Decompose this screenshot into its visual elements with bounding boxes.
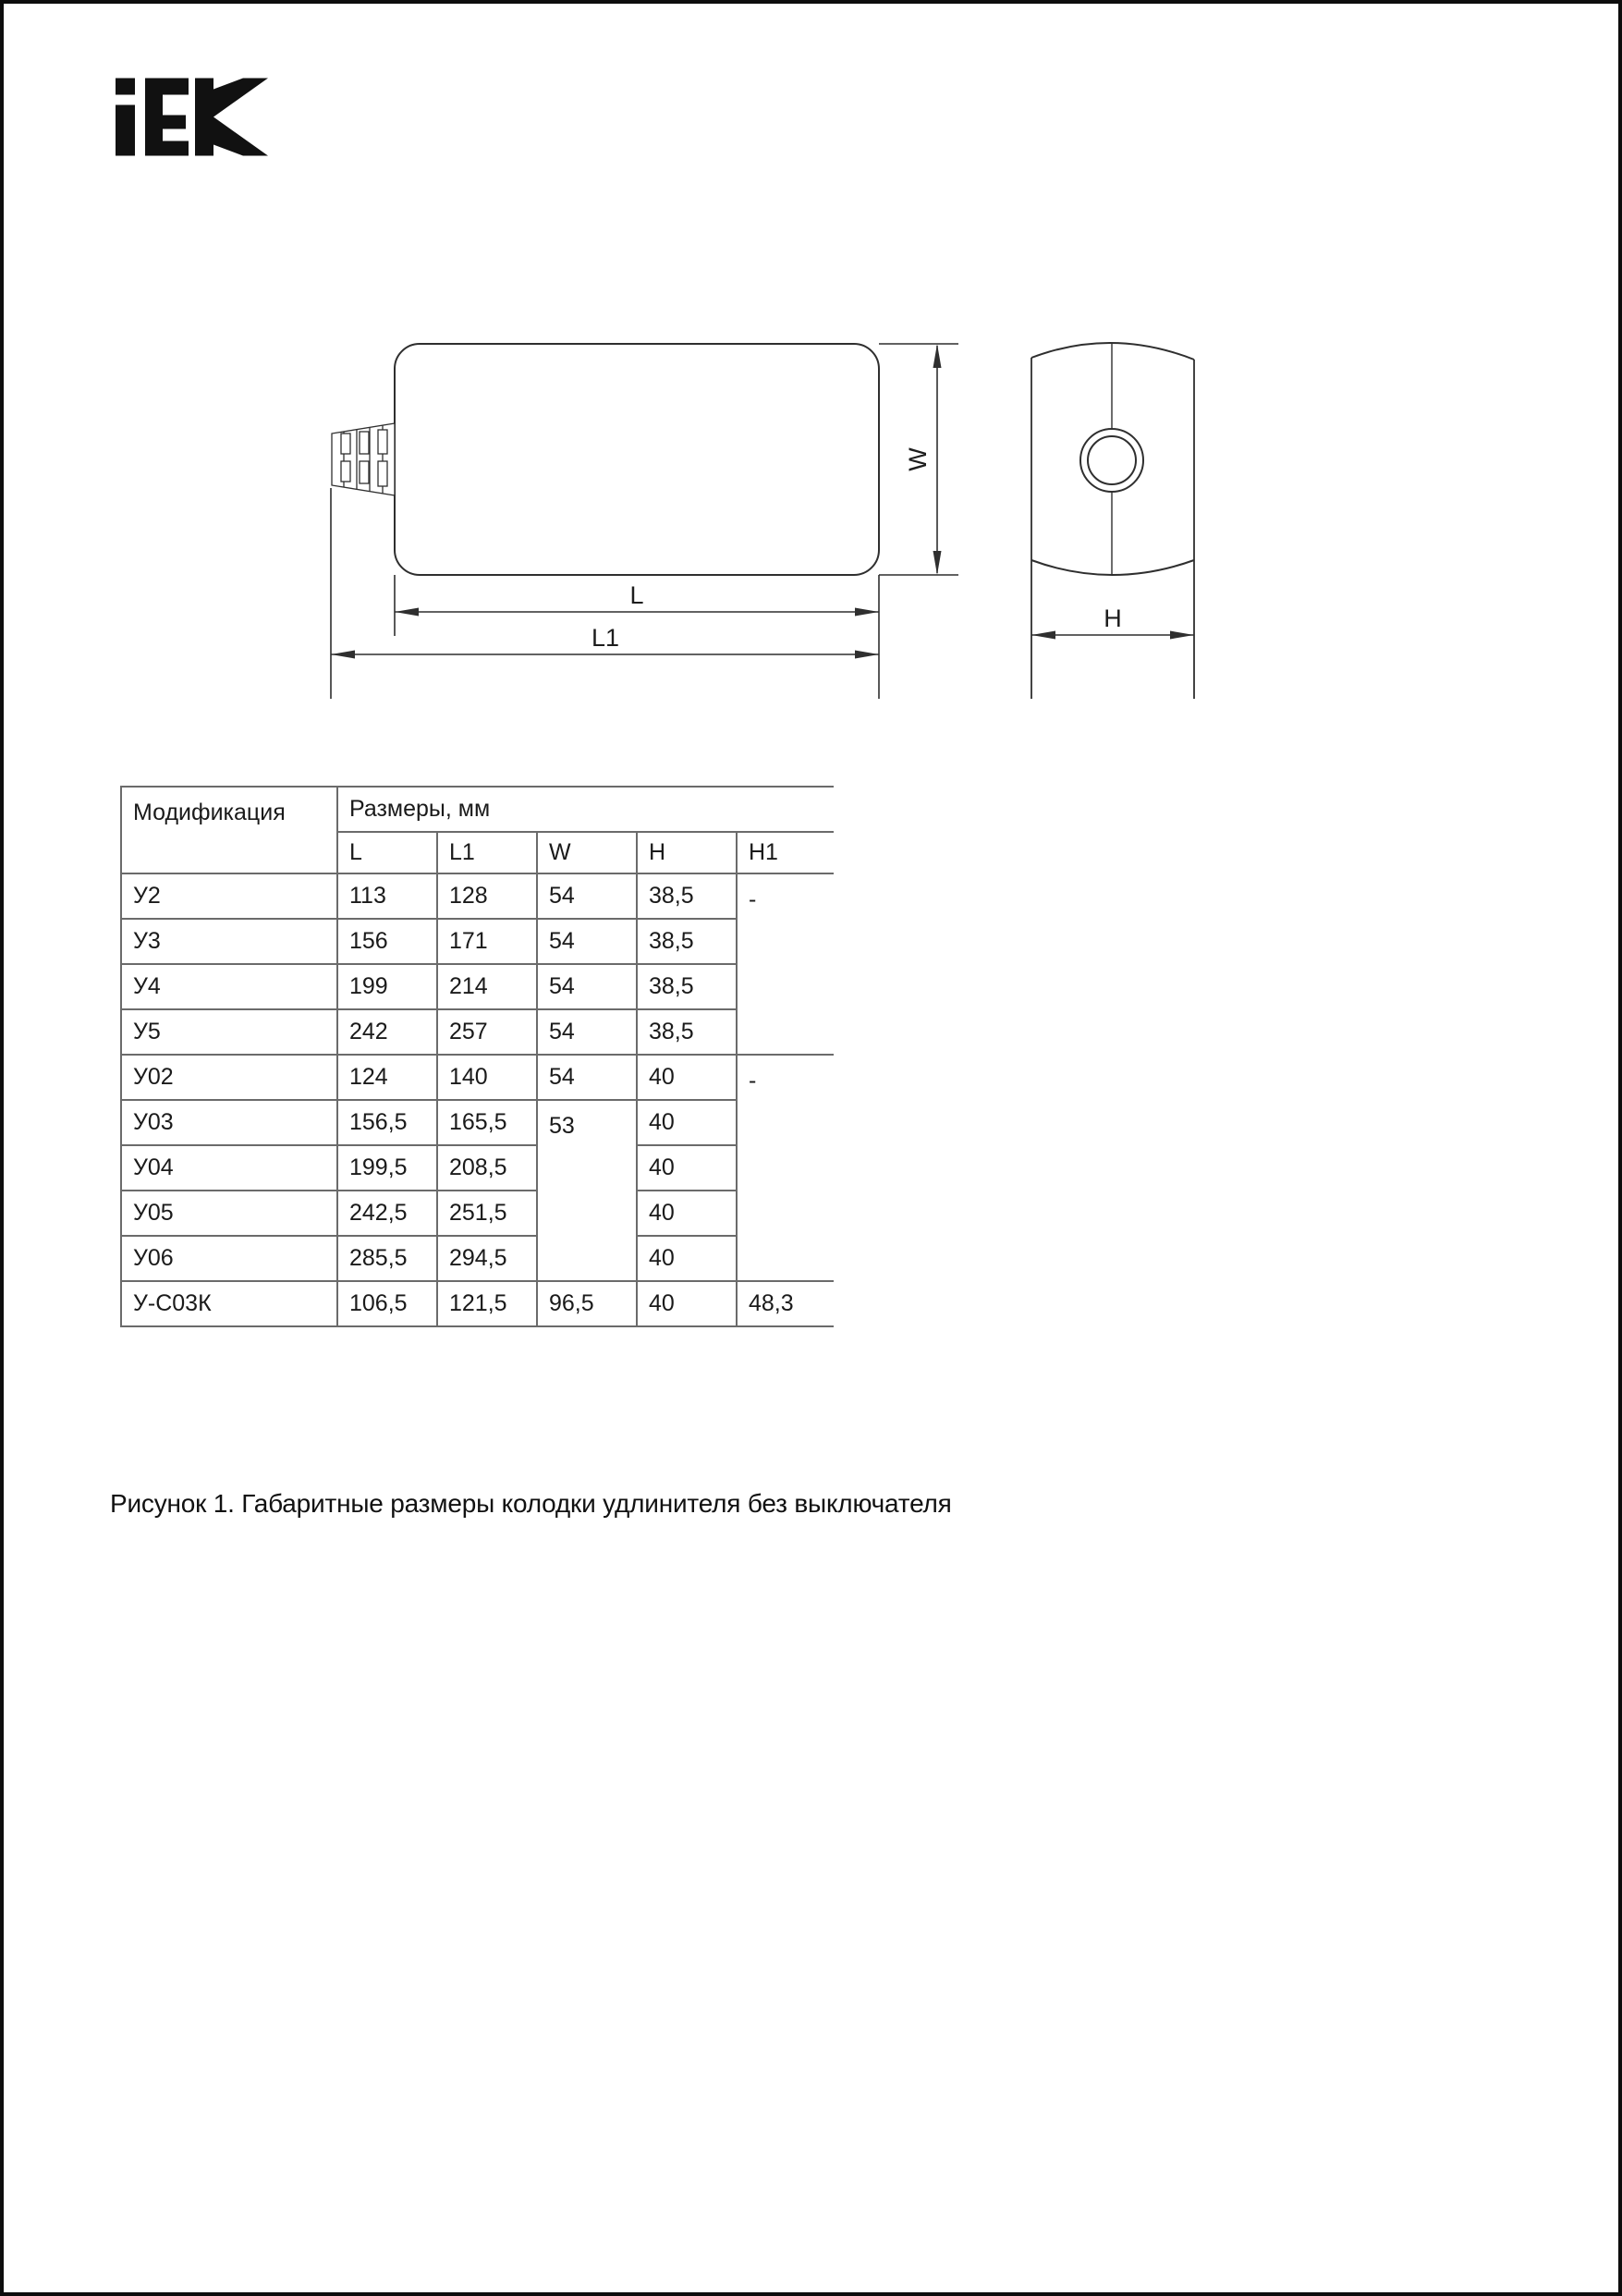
logo-letter-i-dot [116,79,135,95]
table-cell: 48,3 [737,1281,834,1326]
table-cell: - [737,873,834,1055]
table-cell: 38,5 [637,1009,737,1055]
table-row: У05242,5251,540 [121,1191,834,1236]
table-row: У52422575438,5 [121,1009,834,1055]
table-cell: У04 [121,1145,337,1191]
document-page: IEK [0,0,1622,2296]
side-top-arc [1031,343,1194,360]
dimension-label-l: L [629,581,643,609]
table-cell: 54 [537,964,637,1009]
table-cell: 40 [637,1236,737,1281]
table-cell: 171 [437,919,537,964]
table-cell: 54 [537,1009,637,1055]
iek-logo: IEK [116,78,268,156]
table-header-row-group: Модификация Размеры, мм [121,787,834,832]
table-cell: 38,5 [637,964,737,1009]
top-view [332,344,879,575]
table-cell: 124 [337,1055,437,1100]
table-cell: 285,5 [337,1236,437,1281]
table-cell: 54 [537,873,637,919]
table-cell: 251,5 [437,1191,537,1236]
table-cell: У2 [121,873,337,919]
table-cell: 106,5 [337,1281,437,1326]
arrowhead-left [331,651,355,659]
table-row: У21131285438,5- [121,873,834,919]
side-bottom-arc [1031,560,1194,575]
table-row: У41992145438,5 [121,964,834,1009]
table-cell: У-С03К [121,1281,337,1326]
arrowhead-up [933,344,942,368]
table-cell: 165,5 [437,1100,537,1145]
iek-logo-letters [116,79,268,156]
logo-letter-i-stem [116,105,135,156]
table-cell: У03 [121,1100,337,1145]
logo-letter-e [145,79,189,156]
dimension-l: L [395,575,879,699]
arrowhead-right [855,651,879,659]
dimension-label-w: W [904,447,932,471]
table-cell: 96,5 [537,1281,637,1326]
table-cell: У5 [121,1009,337,1055]
table-cell: 208,5 [437,1145,537,1191]
arrowhead-right [1170,631,1194,640]
table-cell: 38,5 [637,873,737,919]
socket-inner-circle [1088,436,1136,484]
table-cell: 113 [337,873,437,919]
table-cell: У06 [121,1236,337,1281]
arrowhead-right [855,608,879,617]
dimensions-table: Модификация Размеры, мм L L1 W H H1 У211… [120,786,834,1327]
table-cell: 121,5 [437,1281,537,1326]
table-cell: 199,5 [337,1145,437,1191]
table-cell: 128 [437,873,537,919]
header-col-l: L [337,832,437,873]
table-row: У04199,5208,540 [121,1145,834,1191]
table-cell: 54 [537,919,637,964]
dimension-w: W [879,344,958,575]
side-view [1031,343,1194,699]
cable-gland [332,423,395,495]
table-row: У06285,5294,540 [121,1236,834,1281]
table-cell: 40 [637,1191,737,1236]
logo-letter-k-stem [195,79,213,156]
table-cell: 40 [637,1055,737,1100]
table-cell: 156,5 [337,1100,437,1145]
table-cell: 242 [337,1009,437,1055]
figure-caption: Рисунок 1. Габаритные размеры колодки уд… [110,1489,952,1519]
table-cell: 156 [337,919,437,964]
table-cell: - [737,1055,834,1281]
dimension-label-l1: L1 [591,624,619,652]
dimension-drawing: W L L1 [318,323,1219,706]
arrowhead-left [1031,631,1055,640]
table-row: У021241405440- [121,1055,834,1100]
table-cell: 54 [537,1055,637,1100]
table-cell: 140 [437,1055,537,1100]
dimensions-table-body: У21131285438,5-У31561715438,5У4199214543… [121,873,834,1326]
logo-letter-k-upper-arm [213,79,268,117]
table-cell: У3 [121,919,337,964]
table-cell: 38,5 [637,919,737,964]
table-cell: 40 [637,1281,737,1326]
table-cell: 40 [637,1145,737,1191]
table-cell: 257 [437,1009,537,1055]
logo-letter-k-lower-arm [213,117,268,156]
table-cell: 40 [637,1100,737,1145]
table-cell: У02 [121,1055,337,1100]
arrowhead-down [933,551,942,575]
arrowhead-left [395,608,419,617]
header-col-l1: L1 [437,832,537,873]
table-cell: 199 [337,964,437,1009]
table-row: У31561715438,5 [121,919,834,964]
table-cell: 242,5 [337,1191,437,1236]
header-dimensions-group: Размеры, мм [337,787,834,832]
table-cell: 294,5 [437,1236,537,1281]
header-col-w: W [537,832,637,873]
table-cell: У4 [121,964,337,1009]
table-cell: 53 [537,1100,637,1281]
header-col-h1: H1 [737,832,834,873]
table-cell: У05 [121,1191,337,1236]
table-row: У03156,5165,55340 [121,1100,834,1145]
header-col-h: H [637,832,737,873]
table-cell: 214 [437,964,537,1009]
dimension-h: H [1031,605,1194,640]
table-row: У-С03К106,5121,596,54048,3 [121,1281,834,1326]
dimension-label-h: H [1104,605,1122,632]
body-outline [395,344,879,575]
header-modification: Модификация [121,787,337,873]
